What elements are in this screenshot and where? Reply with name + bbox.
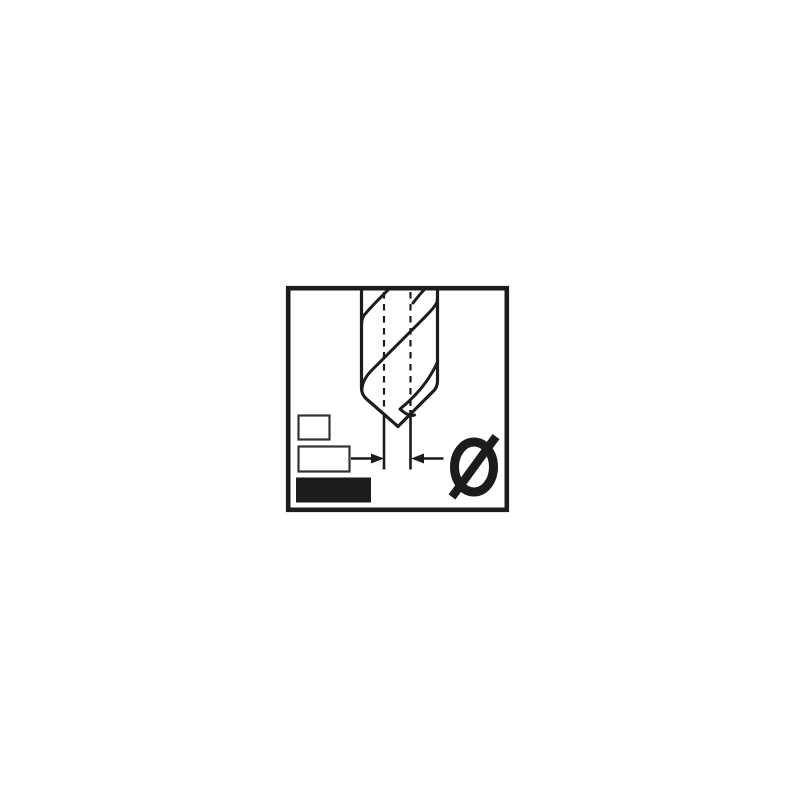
drill-diameter-pictogram: [0, 0, 800, 800]
diameter-symbol: [455, 440, 494, 494]
dimension-arrow-left: [351, 454, 384, 464]
legend-box-medium-outline: [299, 447, 350, 472]
dimension-arrow-right-head: [411, 454, 424, 464]
drill-flute-line-main: [362, 295, 438, 390]
legend-box-filled: [296, 478, 371, 503]
pictogram-frame: [288, 288, 507, 510]
twist-drill-illustration: [362, 289, 438, 427]
diameter-dimension: [351, 410, 444, 470]
canvas: [0, 0, 800, 800]
legend-box-small-outline: [299, 416, 330, 440]
dimension-arrow-right: [411, 454, 444, 464]
dimension-arrow-left-head: [371, 454, 384, 464]
drill-flute-line-top-right: [413, 290, 424, 303]
